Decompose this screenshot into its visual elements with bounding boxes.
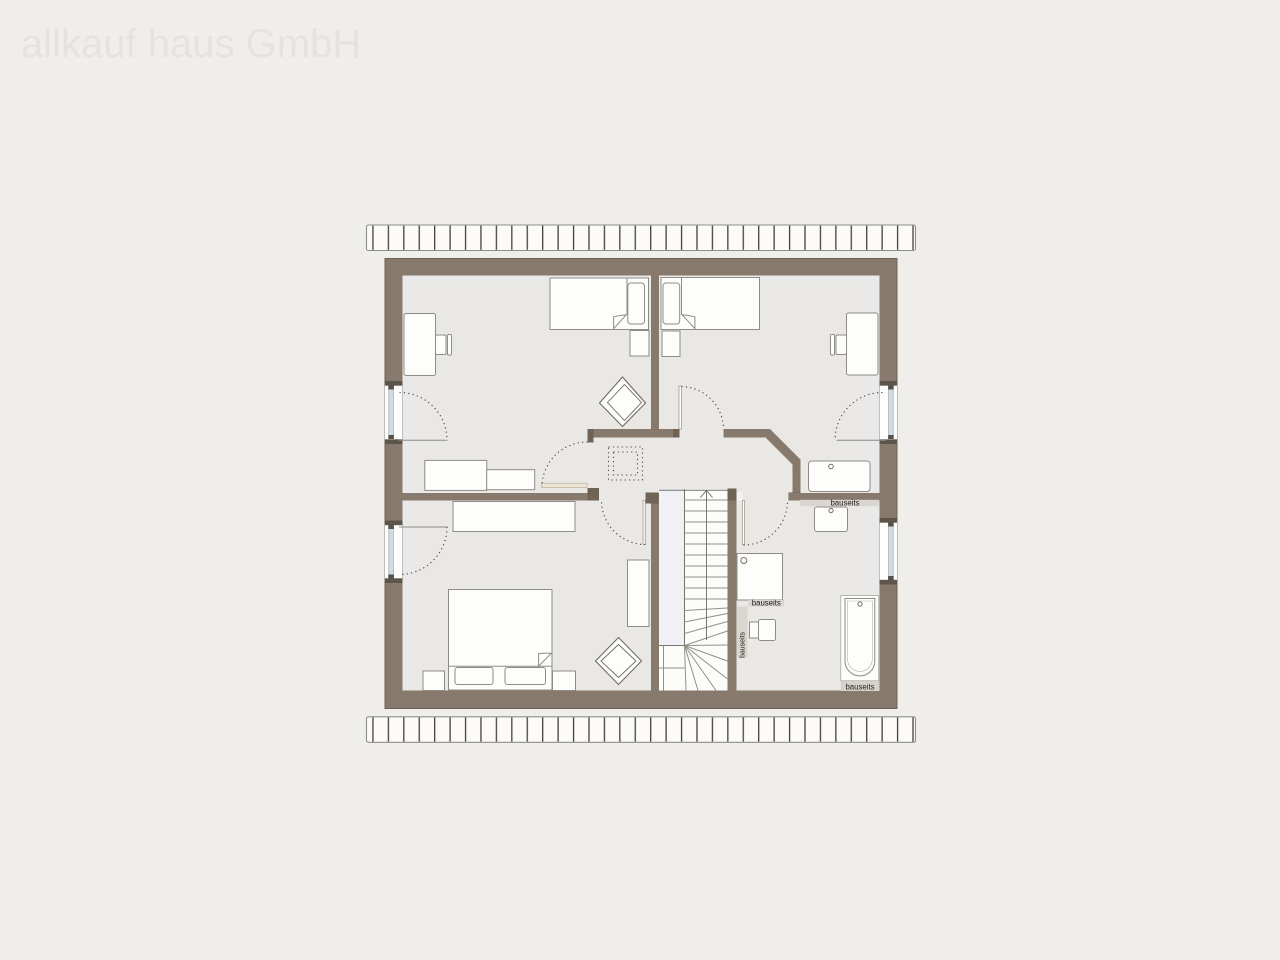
svg-text:allkauf haus GmbH: allkauf haus GmbH: [21, 22, 361, 66]
svg-text:bauseits: bauseits: [830, 499, 859, 508]
svg-text:bauseits: bauseits: [845, 682, 874, 691]
svg-text:bauseits: bauseits: [752, 599, 781, 608]
svg-text:bauseits: bauseits: [739, 631, 746, 658]
